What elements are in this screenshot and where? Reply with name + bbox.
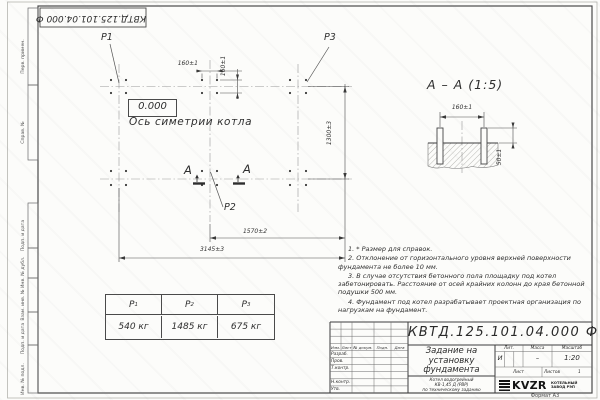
margin-label-vzam-inv: Взам. инв. №: [19, 288, 29, 322]
listov-label: Листов: [544, 370, 560, 375]
row-tkontr: Т.контр.: [331, 366, 350, 371]
load-table-header-p3: P3: [218, 295, 274, 315]
margin-label-podp-data-2: Подп. и дата: [19, 322, 29, 355]
load-point-p1-label: P1: [101, 33, 113, 43]
kvzr-logo-subtitle: КОТЕЛЬНЫЙ ЗАВОД РЭП: [551, 381, 577, 390]
col-list: Лист: [341, 345, 352, 350]
dim-foundation-width: 1300±3: [327, 118, 335, 148]
list-label: Лист: [495, 370, 542, 375]
note-2: 2. Отклонение от горизонтального уровня …: [338, 254, 590, 271]
margin-label-sprav-no: Справ. №: [19, 95, 29, 170]
col-data: Дата: [391, 345, 408, 350]
section-dim-height: 50±1: [497, 147, 505, 167]
col-dokum: № докум.: [352, 345, 374, 350]
dim-bolt-spacing-v: 160±1: [221, 55, 229, 77]
row-razrab: Разраб.: [331, 352, 348, 357]
load-table-value-p3: 675 кг: [218, 316, 274, 338]
drawing-sheet: КВТД.125.101.04.000 Ф Перв. примен. Спра…: [0, 0, 600, 400]
load-table: P1 P2 P3 540 кг 1485 кг 675 кг: [105, 294, 275, 340]
col-izm: Изм.: [330, 345, 341, 350]
dim-bolt-spacing-h: 160±1: [168, 61, 198, 68]
section-letter-left: А: [184, 164, 192, 177]
load-table-header-p2: P2: [162, 295, 218, 315]
margin-label-podp-data-1: Подп. и дата: [19, 213, 29, 258]
lit-value: И: [495, 355, 505, 362]
row-prov: Пров.: [331, 359, 344, 364]
drawing-title-line-3: фундамента: [408, 366, 495, 375]
kvzr-logo-text: KVZR: [512, 379, 547, 392]
level-mark-box: 0.000: [128, 99, 177, 117]
col-podp: Подп.: [374, 345, 391, 350]
top-stamp-doc-number: КВТД.125.101.04.000 Ф: [40, 8, 146, 27]
notes-block: 1. * Размер для справок. 2. Отклонение о…: [338, 245, 590, 315]
dim-total-length: 3145±3: [182, 247, 242, 254]
sheet-format-label: Формат А3: [510, 394, 580, 400]
note-3: 3. В случае отсутствия бетонного пола пл…: [338, 272, 590, 297]
listov-value: 1: [578, 370, 581, 375]
drawing-title-line-1: Задание на: [408, 347, 495, 356]
boiler-symmetry-axis-label: Ось симетрии котла: [129, 117, 252, 129]
massa-label: Масса: [523, 346, 552, 351]
dim-half-length: 1570±2: [225, 229, 285, 236]
load-point-p3-label: P3: [324, 33, 336, 43]
kvzr-logo-icon: [499, 380, 510, 391]
note-1: 1. * Размер для справок.: [338, 245, 590, 253]
margin-label-inv-dubl: Инв. № дубл.: [19, 258, 29, 288]
kvzr-subtitle-line-2: ЗАВОД РЭП: [551, 385, 577, 389]
masshtab-value: 1:20: [552, 355, 592, 363]
row-utv: Утв.: [331, 387, 340, 392]
level-mark-value: 0.000: [129, 101, 176, 112]
margin-label-perv-primen: Перв. примен.: [19, 18, 29, 95]
section-view-title: А – А (1:5): [427, 78, 503, 92]
massa-value: –: [523, 355, 552, 362]
load-point-p2-label: P2: [224, 203, 236, 213]
load-table-value-p2: 1485 кг: [162, 316, 218, 338]
product-name-line-3: по техническому заданию: [408, 388, 495, 393]
masshtab-label: Масштаб: [552, 346, 592, 351]
row-nkontr: Н.контр.: [331, 380, 350, 385]
note-4: 4. Фундамент под котел разрабатывает про…: [338, 298, 590, 315]
section-dim-spacing: 160±1: [440, 105, 484, 112]
margin-label-inv-podl: Инв. № подл.: [19, 355, 29, 400]
lit-label: Лит.: [495, 346, 523, 351]
load-table-value-p1: 540 кг: [106, 316, 162, 338]
section-letter-right: А: [243, 163, 251, 176]
title-block-doc-number: КВТД.125.101.04.000 Ф: [408, 326, 592, 340]
load-table-header-p1: P1: [106, 295, 162, 315]
